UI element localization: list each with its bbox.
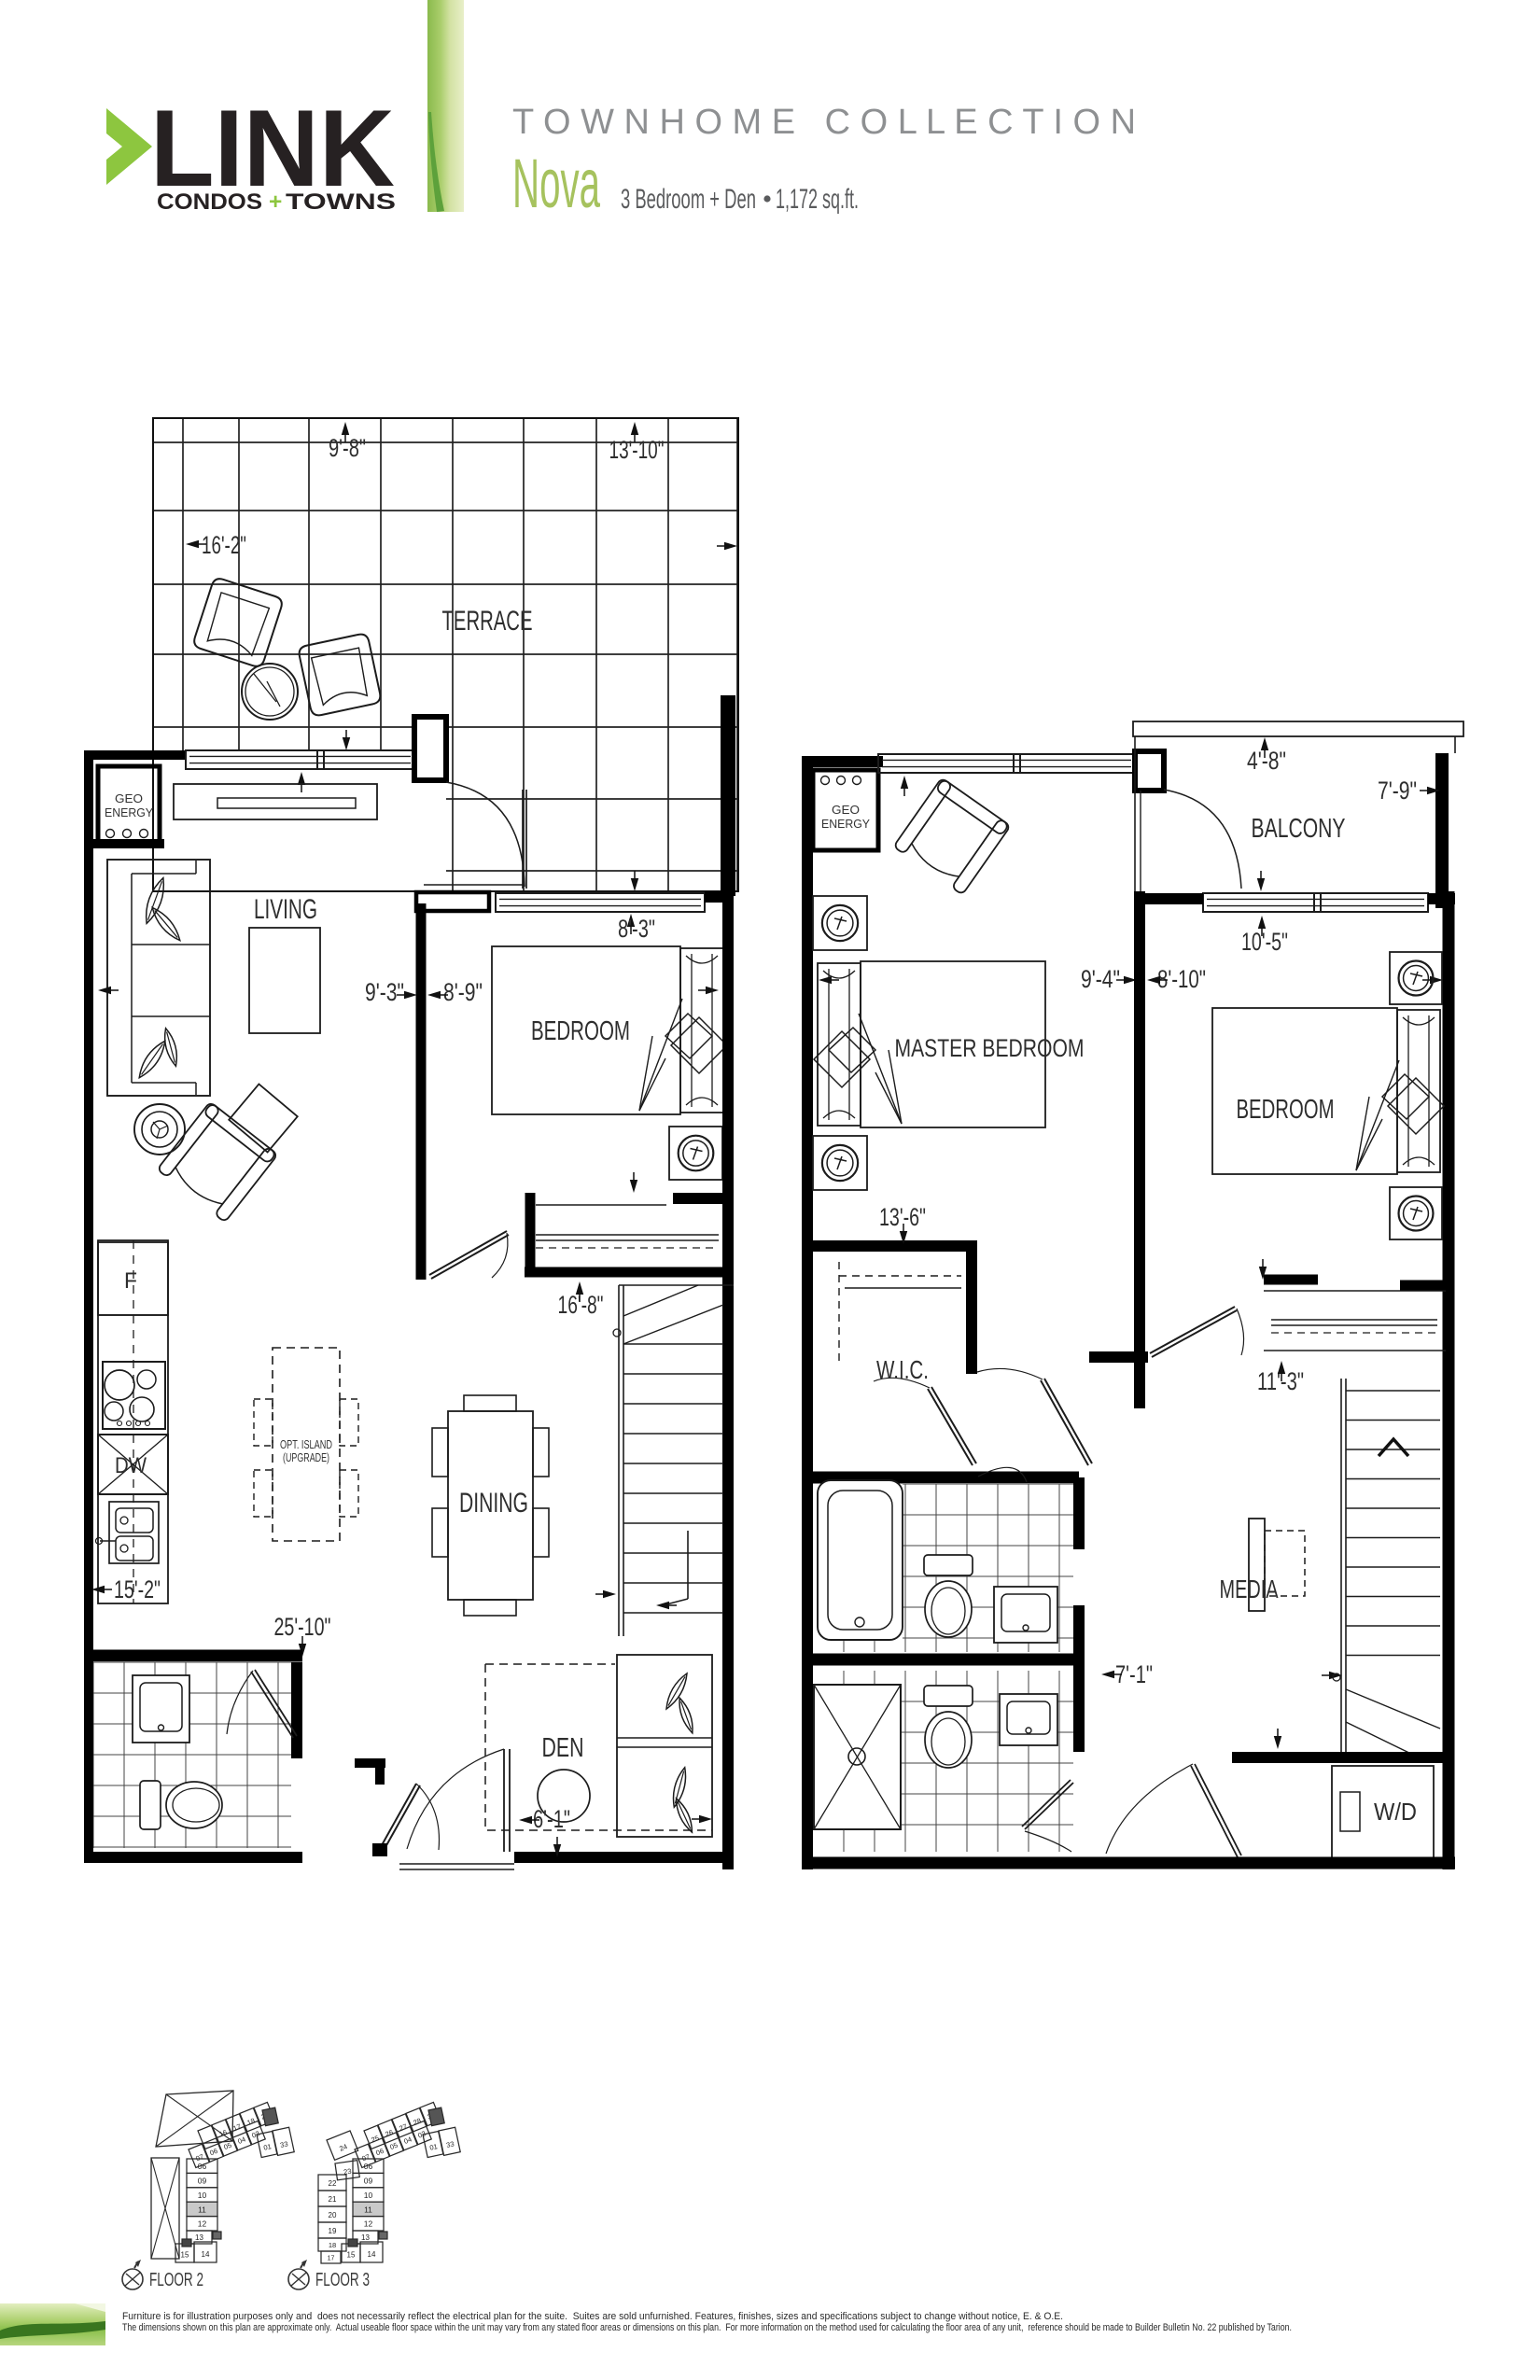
svg-text:LIVING: LIVING <box>254 894 317 925</box>
svg-text:11: 11 <box>364 2205 372 2214</box>
svg-text:10: 10 <box>198 2191 207 2200</box>
svg-text:8'-10": 8'-10" <box>1157 965 1206 993</box>
svg-text:8'-3": 8'-3" <box>618 915 655 943</box>
svg-text:W.I.C.: W.I.C. <box>876 1355 929 1384</box>
svg-text:14: 14 <box>202 2250 210 2259</box>
svg-text:22: 22 <box>329 2179 337 2188</box>
svg-text:12: 12 <box>198 2219 207 2229</box>
svg-text:+: + <box>269 189 282 215</box>
svg-text:06: 06 <box>198 2162 207 2171</box>
svg-text:20: 20 <box>329 2211 337 2219</box>
svg-text:11: 11 <box>198 2205 206 2214</box>
svg-text:W/D: W/D <box>1374 1798 1417 1826</box>
svg-text:1,172 sq.ft.: 1,172 sq.ft. <box>776 184 859 215</box>
svg-text:17: 17 <box>328 2255 335 2261</box>
svg-text:T O W N H O M E C O L L E C: T O W N H O M E C O L L E C T I O N <box>512 103 1136 142</box>
svg-text:FLOOR 3: FLOOR 3 <box>315 2270 370 2290</box>
svg-text:6'-1": 6'-1" <box>533 1805 570 1833</box>
svg-text:Furniture is for illustration: Furniture is for illustration purposes o… <box>122 2311 1063 2322</box>
svg-text:10'-5": 10'-5" <box>1241 928 1288 956</box>
svg-text:TERRACE: TERRACE <box>442 606 533 637</box>
svg-text:13: 13 <box>361 2233 370 2242</box>
svg-text:OPT. ISLAND: OPT. ISLAND <box>280 1437 332 1451</box>
svg-text:MEDIA: MEDIA <box>1220 1575 1279 1603</box>
svg-text:13'-10": 13'-10" <box>609 436 665 464</box>
svg-text:12: 12 <box>364 2219 373 2229</box>
svg-text:09: 09 <box>198 2176 207 2185</box>
svg-text:ENERGY: ENERGY <box>821 817 870 831</box>
svg-text:9'-8": 9'-8" <box>329 434 366 462</box>
svg-text:19: 19 <box>329 2227 337 2235</box>
svg-text:15: 15 <box>347 2250 356 2259</box>
svg-text:21: 21 <box>329 2195 337 2204</box>
svg-text:F: F <box>124 1268 137 1294</box>
svg-text:The dimensions shown on this p: The dimensions shown on this plan are ap… <box>122 2322 1292 2333</box>
svg-text:9'-4": 9'-4" <box>1081 965 1120 993</box>
svg-text:Nova: Nova <box>512 145 600 222</box>
svg-text:BEDROOM: BEDROOM <box>531 1016 630 1046</box>
svg-text:14: 14 <box>368 2250 376 2259</box>
svg-text:BALCONY: BALCONY <box>1252 814 1346 844</box>
svg-text:GEO: GEO <box>832 803 860 817</box>
svg-text:10: 10 <box>364 2191 373 2200</box>
svg-text:TOWNS: TOWNS <box>286 189 396 215</box>
svg-text:DW: DW <box>115 1453 147 1478</box>
svg-text:09: 09 <box>364 2176 373 2185</box>
svg-text:8'-9": 8'-9" <box>443 978 483 1006</box>
svg-text:DINING: DINING <box>459 1488 528 1519</box>
svg-text:CONDOS: CONDOS <box>157 189 262 215</box>
svg-text:9'-3": 9'-3" <box>365 978 404 1006</box>
svg-text:FLOOR 2: FLOOR 2 <box>149 2270 203 2290</box>
svg-text:18: 18 <box>329 2241 336 2249</box>
svg-text:GEO: GEO <box>115 791 143 805</box>
svg-text:16'-2": 16'-2" <box>202 531 246 559</box>
svg-text:ENERGY: ENERGY <box>105 805 153 819</box>
svg-text:7'-9": 7'-9" <box>1378 777 1417 805</box>
svg-text:3 Bedroom + Den: 3 Bedroom + Den <box>621 184 756 215</box>
svg-text:(UPGRADE): (UPGRADE) <box>283 1450 329 1464</box>
svg-text:15'-2": 15'-2" <box>114 1575 161 1603</box>
svg-text:4'-8": 4'-8" <box>1247 747 1286 775</box>
svg-text:MASTER BEDROOM: MASTER BEDROOM <box>895 1034 1085 1062</box>
svg-text:15: 15 <box>181 2250 189 2259</box>
svg-text:DEN: DEN <box>542 1733 584 1763</box>
svg-text:13'-6": 13'-6" <box>879 1203 926 1231</box>
svg-text:BEDROOM: BEDROOM <box>1237 1095 1335 1125</box>
svg-text:13: 13 <box>195 2233 203 2242</box>
svg-text:06: 06 <box>364 2162 373 2171</box>
svg-text:16'-8": 16'-8" <box>558 1291 604 1319</box>
